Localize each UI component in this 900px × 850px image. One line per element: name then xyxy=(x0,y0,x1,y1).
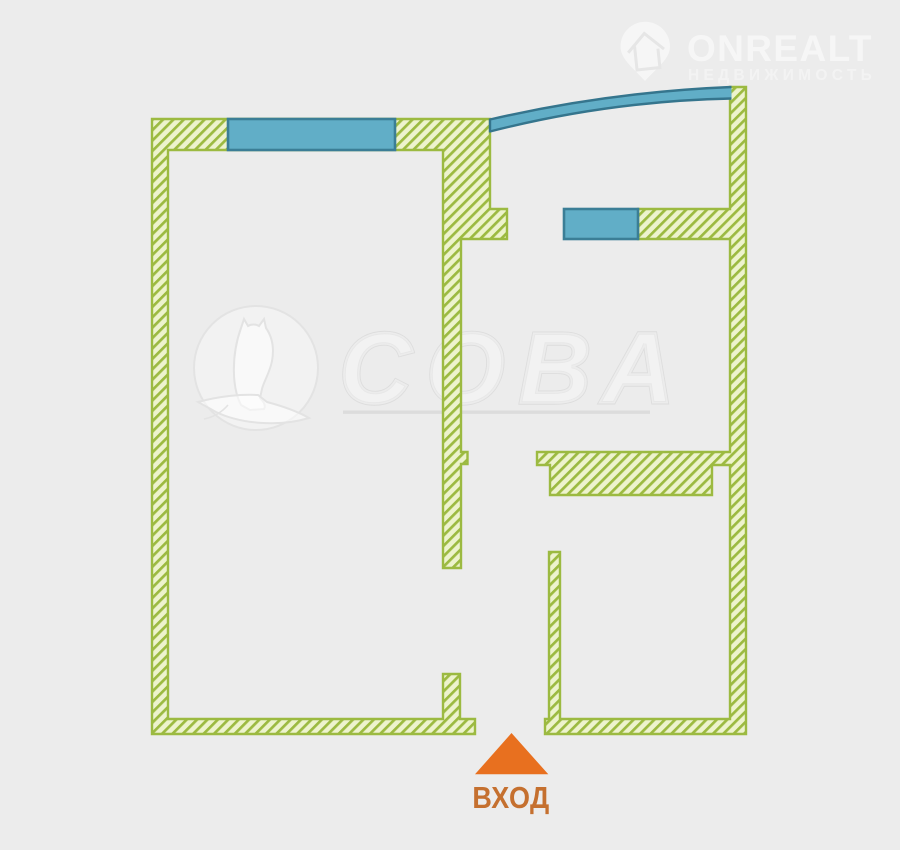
svg-text:ONREALT: ONREALT xyxy=(687,28,873,69)
svg-text:НЕДВИЖИМОСТЬ: НЕДВИЖИМОСТЬ xyxy=(688,67,876,84)
svg-text:СОВА: СОВА xyxy=(339,313,689,425)
svg-text:ВХОД: ВХОД xyxy=(472,781,549,815)
